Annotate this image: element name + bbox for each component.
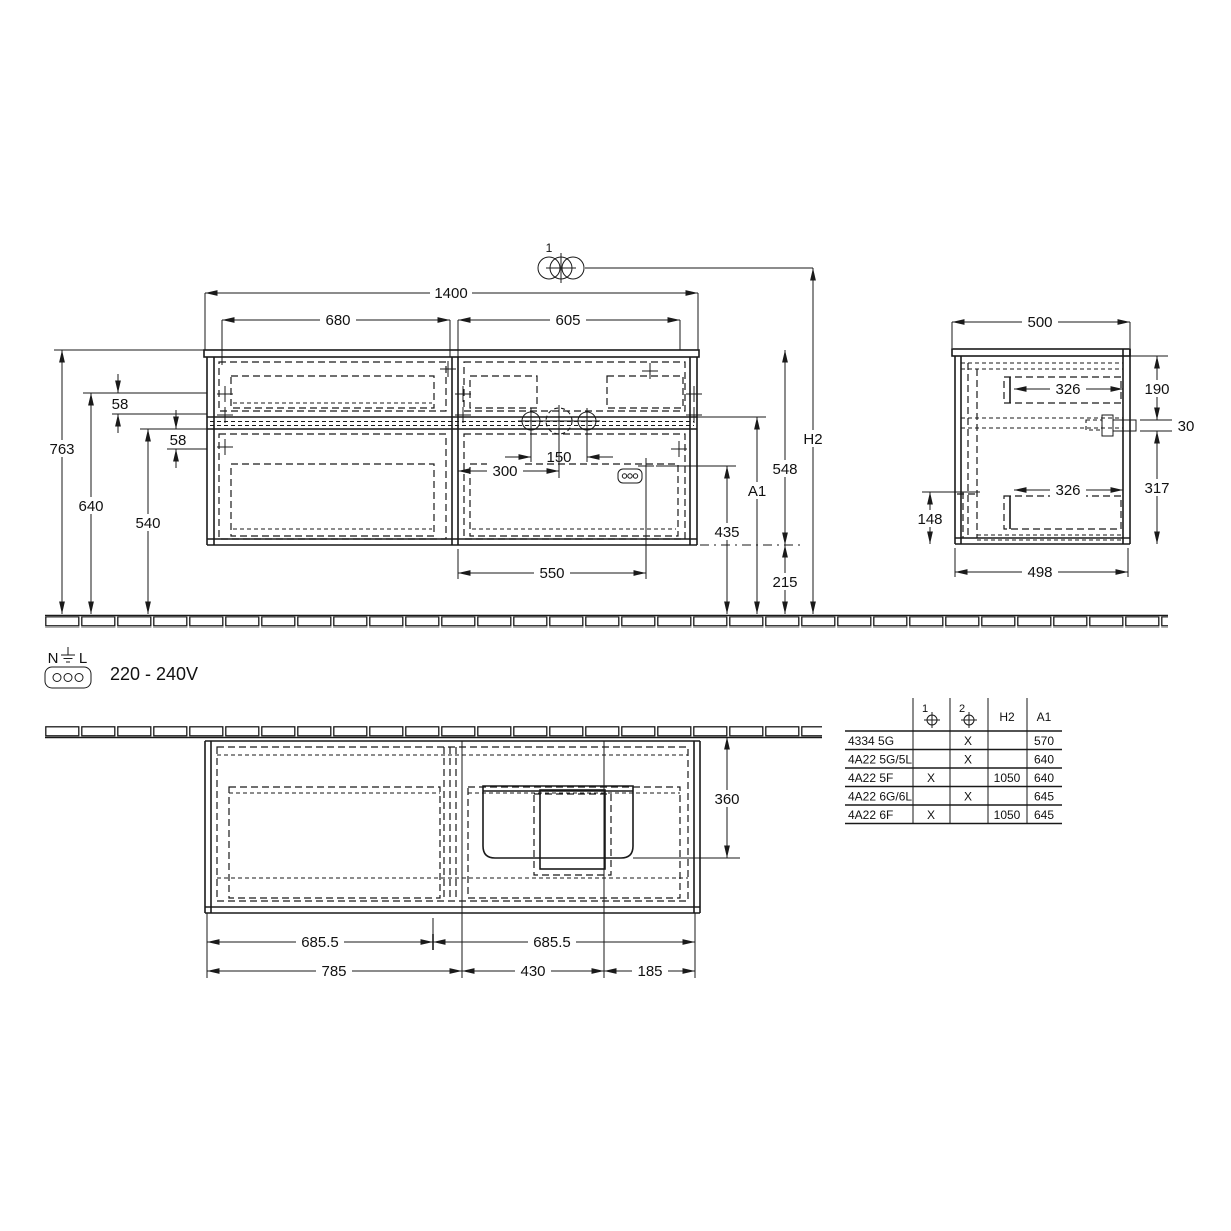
table-header-col1: 1 [922, 703, 928, 715]
dim-326-bottom: 326 [1055, 482, 1080, 499]
dim-763: 763 [49, 441, 74, 458]
dim-a1: A1 [748, 483, 766, 500]
row1-a1: 640 [1034, 753, 1054, 767]
row2-model: 4A22 5F [848, 771, 893, 785]
dim-548: 548 [772, 461, 797, 478]
table-header-col2: 2 [959, 703, 965, 715]
row1-c2: X [964, 753, 972, 767]
row3-c2: X [964, 790, 972, 804]
dim-30: 30 [1178, 418, 1195, 435]
washbasin-outline [483, 786, 633, 875]
dim-h2: H2 [803, 431, 822, 448]
spec-table: 1 2 H2 A1 4334 5G X 570 4A22 5G/5L X 640… [845, 698, 1062, 824]
table-row: 4A22 6G/6L X 645 [848, 790, 1054, 804]
dim-1400: 1400 [434, 285, 467, 302]
table-row: 4A22 5F X 1050 640 [848, 771, 1054, 785]
dim-300: 300 [492, 463, 517, 480]
row2-a1: 640 [1034, 771, 1054, 785]
wall-line [45, 726, 822, 738]
label-l: L [79, 650, 87, 667]
row4-model: 4A22 6F [848, 808, 893, 822]
label-n: N [48, 650, 59, 667]
table-row: 4334 5G X 570 [848, 734, 1054, 748]
dim-58-top: 58 [112, 396, 129, 413]
row2-c1: X [927, 771, 935, 785]
dim-185: 185 [637, 963, 662, 980]
dim-685-right: 685.5 [533, 934, 571, 951]
row4-h2: 1050 [994, 808, 1021, 822]
power-connection: N L 220 - 240V [45, 647, 198, 688]
dim-435: 435 [714, 524, 739, 541]
dim-326-top: 326 [1055, 381, 1080, 398]
earth-ground-icon [61, 647, 75, 662]
plan-view-dimensions: 360 685.5 685.5 785 430 185 [207, 737, 745, 980]
dim-540: 540 [135, 515, 160, 532]
floor-line [45, 616, 1168, 628]
faucet-hole-icons [518, 405, 600, 437]
dim-215: 215 [772, 574, 797, 591]
dim-498: 498 [1027, 564, 1052, 581]
dim-430: 430 [520, 963, 545, 980]
row1-model: 4A22 5G/5L [848, 753, 912, 767]
dim-680: 680 [325, 312, 350, 329]
row0-model: 4334 5G [848, 734, 894, 748]
row3-a1: 645 [1034, 790, 1054, 804]
power-socket-icon [45, 667, 91, 688]
table-header-a1: A1 [1037, 710, 1052, 724]
table-row: 4A22 6F X 1050 645 [848, 808, 1054, 822]
dim-500: 500 [1027, 314, 1052, 331]
callout-number: 1 [546, 241, 553, 255]
row4-a1: 645 [1034, 808, 1054, 822]
front-view [204, 350, 702, 545]
table-row: 4A22 5G/5L X 640 [848, 753, 1054, 767]
row0-c2: X [964, 734, 972, 748]
dim-550: 550 [539, 565, 564, 582]
faucet-symbol-icon [538, 253, 584, 283]
front-view-dimensions: 1400 680 605 763 640 540 58 58 150 300 5… [44, 268, 829, 614]
dim-685-left: 685.5 [301, 934, 339, 951]
row3-model: 4A22 6G/6L [848, 790, 912, 804]
dim-148: 148 [917, 511, 942, 528]
faucet-callout: 1 [538, 241, 813, 283]
dim-785: 785 [321, 963, 346, 980]
cable-outlet-icon [618, 469, 642, 483]
dim-190: 190 [1144, 381, 1169, 398]
plan-view [205, 741, 700, 913]
side-view [952, 349, 1136, 544]
row4-c1: X [927, 808, 935, 822]
dim-317: 317 [1144, 480, 1169, 497]
row2-h2: 1050 [994, 771, 1021, 785]
dim-640: 640 [78, 498, 103, 515]
table-header-h2: H2 [999, 710, 1015, 724]
dim-58-bottom: 58 [170, 432, 187, 449]
voltage-label: 220 - 240V [110, 664, 198, 684]
dim-605: 605 [555, 312, 580, 329]
row0-a1: 570 [1034, 734, 1054, 748]
technical-drawing: 1 [0, 0, 1231, 1231]
dim-360: 360 [714, 791, 739, 808]
